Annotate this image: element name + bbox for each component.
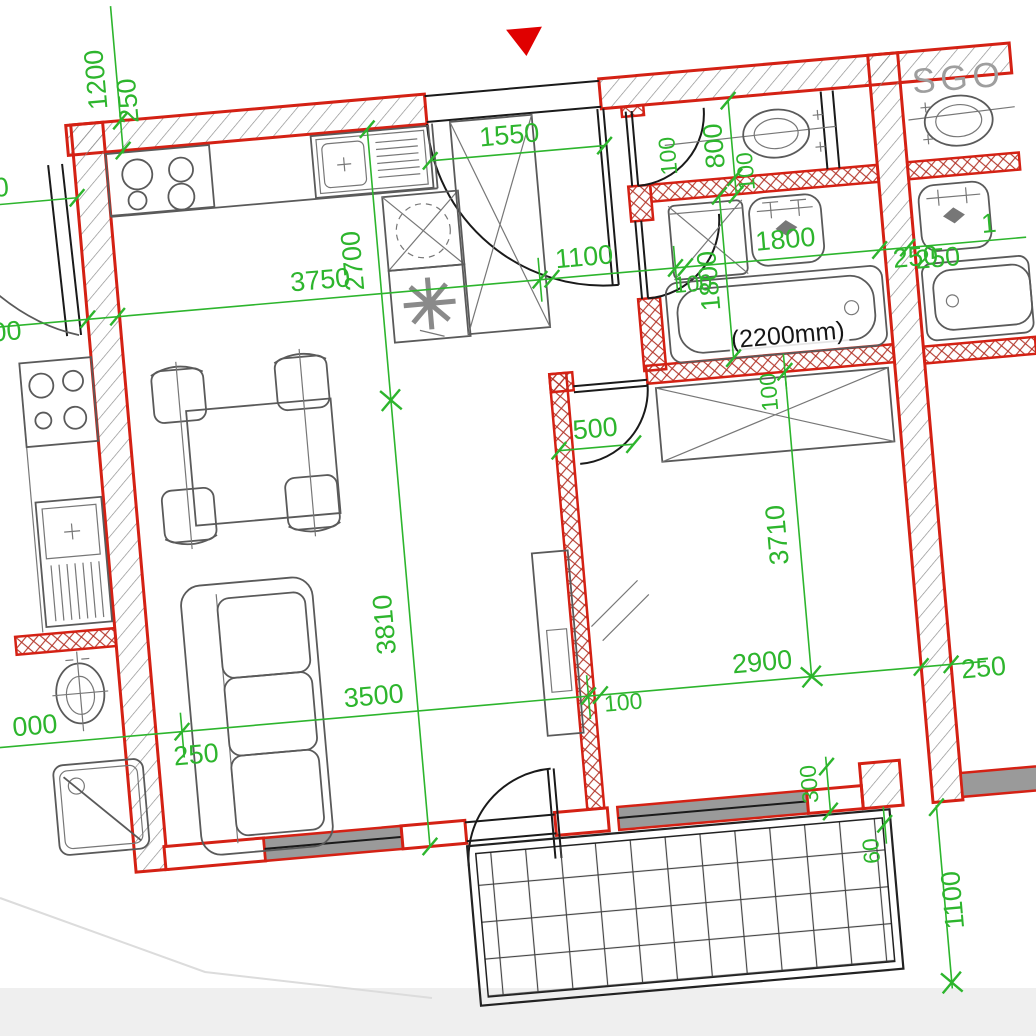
floor-plan-canvas: (2200mm) bbox=[0, 0, 1036, 1036]
bottom-wall-pier bbox=[859, 760, 903, 808]
terrain-line bbox=[0, 898, 432, 998]
dim-label: 500 bbox=[571, 412, 619, 446]
bottom-wall-segment bbox=[401, 820, 467, 848]
dim-chain-upper: 3750 1100 100 1800 250 00 250 1 bbox=[0, 203, 1029, 360]
dim-label: 250 bbox=[172, 738, 220, 772]
bathroom-door-leaf bbox=[641, 221, 648, 299]
balcony-tiles bbox=[476, 818, 895, 997]
dim-label: 250 bbox=[960, 651, 1008, 685]
wc-shaft-wall bbox=[833, 91, 840, 169]
neighbor-room-label: SGO bbox=[910, 55, 1006, 102]
kitchen-fixtures bbox=[105, 115, 550, 366]
dim-label: 1200 bbox=[78, 48, 113, 110]
dim-label-clipped: 000 bbox=[11, 709, 59, 743]
entrance-marker-triangle bbox=[506, 27, 544, 58]
toilet-flush-mark bbox=[942, 206, 965, 224]
dim-label: 1800 bbox=[691, 250, 726, 312]
dim-label: 1100 bbox=[935, 870, 970, 930]
neighbor-bidet-icon bbox=[49, 649, 112, 734]
neighbor-right: SGO bbox=[904, 54, 1035, 341]
bathtub-note: (2200mm) bbox=[730, 316, 846, 354]
bedroom-door-leaf bbox=[574, 386, 648, 392]
cooktop-icon bbox=[105, 145, 214, 216]
dim-label-clipped: 1 bbox=[980, 208, 998, 239]
washing-machine-icon bbox=[382, 191, 464, 271]
dim-label: 1550 bbox=[478, 117, 540, 152]
plan-rotated-group: (2200mm) bbox=[0, 0, 1036, 1036]
dim-label: 1800 bbox=[754, 222, 816, 257]
dim-label: 3710 bbox=[760, 504, 795, 566]
bottom-wall-segment bbox=[554, 808, 609, 836]
fridge-icon bbox=[389, 264, 471, 342]
dim-label: 100 bbox=[731, 151, 760, 191]
wc-door-leaf bbox=[632, 111, 639, 186]
outside-ground-band bbox=[0, 988, 1036, 1036]
neighbor-counter-line bbox=[908, 107, 1015, 120]
floor-plan-page: (2200mm) bbox=[0, 0, 1036, 1036]
dim-label: 250 bbox=[914, 241, 962, 275]
dim-label: 60 bbox=[857, 837, 885, 865]
dim-label: 250 bbox=[111, 77, 145, 125]
neighbor-sink-icon bbox=[35, 497, 112, 627]
balcony bbox=[467, 809, 903, 1005]
wc-bathroom-partition bbox=[650, 165, 879, 202]
neighbor-washbasin-icon bbox=[920, 93, 995, 149]
dim-bathroom: 1800 100 bbox=[686, 183, 788, 417]
dim-label-clipped: 00 bbox=[0, 172, 10, 205]
neighbor-left-partition bbox=[15, 628, 116, 655]
sofa bbox=[179, 576, 334, 856]
neighbor-cooktop-icon bbox=[19, 357, 98, 447]
wc-shaft-wall bbox=[821, 92, 828, 170]
entrance-threshold bbox=[425, 81, 599, 96]
wc-door-leaf bbox=[626, 112, 633, 187]
bedroom-door-leaf bbox=[573, 380, 647, 386]
bathroom-door-leaf bbox=[635, 221, 642, 299]
dim-label: 2700 bbox=[335, 230, 370, 292]
dim-label-clipped: 00 bbox=[0, 315, 23, 348]
dim-label: 2900 bbox=[731, 644, 793, 679]
dim-label: 800 bbox=[697, 122, 731, 170]
wc-counter-line bbox=[664, 126, 836, 145]
dim-label: 3500 bbox=[342, 678, 404, 713]
hall-partition bbox=[638, 297, 666, 371]
dim-label: 300 bbox=[794, 764, 823, 804]
dim-label: 100 bbox=[603, 687, 643, 716]
bedroom-partition-junction bbox=[549, 372, 573, 392]
neighbor-partition bbox=[907, 153, 1020, 180]
dim-label: 100 bbox=[653, 136, 682, 176]
neighbor-window bbox=[961, 763, 1036, 797]
dining-table bbox=[150, 347, 343, 552]
dim-label: 3810 bbox=[367, 593, 402, 655]
dim-label: 1100 bbox=[554, 239, 614, 274]
